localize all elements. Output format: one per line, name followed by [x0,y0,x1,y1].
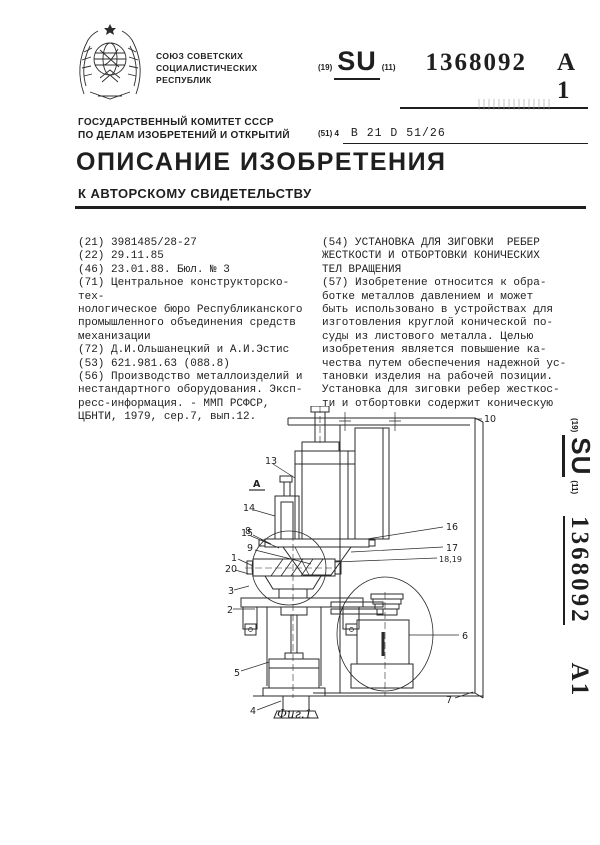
patent-figure: 13 А 14 15 8 9 1 20 3 2 5 4 10 16 17 18,… [225,406,537,724]
callout-13: 13 [265,456,277,467]
callout-2: 2 [227,605,233,616]
abstract-column: (54) УСТАНОВКА ДЛЯ ЗИГОВКИ РЕБЕР ЖЕСТКОС… [322,237,570,411]
committee-name: ГОСУДАРСТВЕННЫЙ КОМИТЕТ СССР ПО ДЕЛАМ ИЗ… [78,116,290,142]
section-label: А [253,479,261,490]
scan-noise [478,99,550,110]
country-code: SU [334,46,380,80]
publication-number: 1368092 [426,49,528,77]
callout-1: 1 [231,553,237,564]
callout-3: 3 [228,586,234,597]
sidebar-publication-number: (19) SU (11) 1368092 A1 [540,418,596,706]
callout-9: 9 [247,543,253,554]
field-46-publication: (46) 23.01.88. Бюл. № 3 [78,264,314,277]
field-53-udc: (53) 621.981.63 (088.8) [78,358,314,371]
field-54-invention-title: (54) УСТАНОВКА ДЛЯ ЗИГОВКИ РЕБЕР ЖЕСТКОС… [322,237,570,277]
callout-4: 4 [250,706,256,717]
callout-17: 17 [446,543,458,554]
field-22-filing-date: (22) 29.11.85 [78,250,314,263]
kind-code: A 1 [557,49,588,105]
callout-10: 10 [484,414,496,425]
inid-11-label: (11) [382,63,396,72]
callout-8: 8 [245,526,251,537]
inid-51-label: (51) 4 [318,129,339,138]
document-subtitle: К АВТОРСКОМУ СВИДЕТЕЛЬСТВУ [78,186,312,201]
field-21-application: (21) 3981485/28-27 [78,237,314,250]
ipc-classification: B 21 D 51/26 [351,127,446,140]
ussr-coat-of-arms-icon [72,22,148,104]
country-name: СОЮЗ СОВЕТСКИХ СОЦИАЛИСТИЧЕСКИХ РЕСПУБЛИ… [156,50,258,86]
field-72-inventors: (72) Д.И.Ольшанецкий и А.И.Эстис [78,344,314,357]
field-71-applicant: (71) Центральное конструкторско-тех- нол… [78,277,314,344]
callout-16: 16 [446,522,458,533]
field-57-abstract: (57) Изобретение относится к обра- ботке… [322,277,570,411]
inid-19-label: (19) [318,63,332,72]
sidebar-inid-11-label: (11) [570,480,579,494]
sidebar-kind-code: A1 [565,663,593,698]
callout-20: 20 [225,564,237,575]
title-divider [75,206,586,209]
biblio-column: (21) 3981485/28-27 (22) 29.11.85 (46) 23… [78,237,314,425]
sidebar-inid-19-label: (19) [570,418,579,432]
patent-document-page: СОЮЗ СОВЕТСКИХ СОЦИАЛИСТИЧЕСКИХ РЕСПУБЛИ… [0,0,600,845]
sidebar-number: 1368092 [563,516,593,625]
publication-header: (19) SU (11) 1368092 A 1 (51) 4 B 21 D 5… [318,46,588,144]
callout-5: 5 [234,668,240,679]
sidebar-country-code: SU [562,435,596,477]
callout-6: 6 [462,631,468,642]
document-title: ОПИСАНИЕ ИЗОБРЕТЕНИЯ [76,148,447,177]
callout-7: 7 [446,695,452,706]
callout-18-19: 18,19 [439,555,462,564]
figure-caption: Фиг.1 [277,707,312,721]
callout-14: 14 [243,503,255,514]
